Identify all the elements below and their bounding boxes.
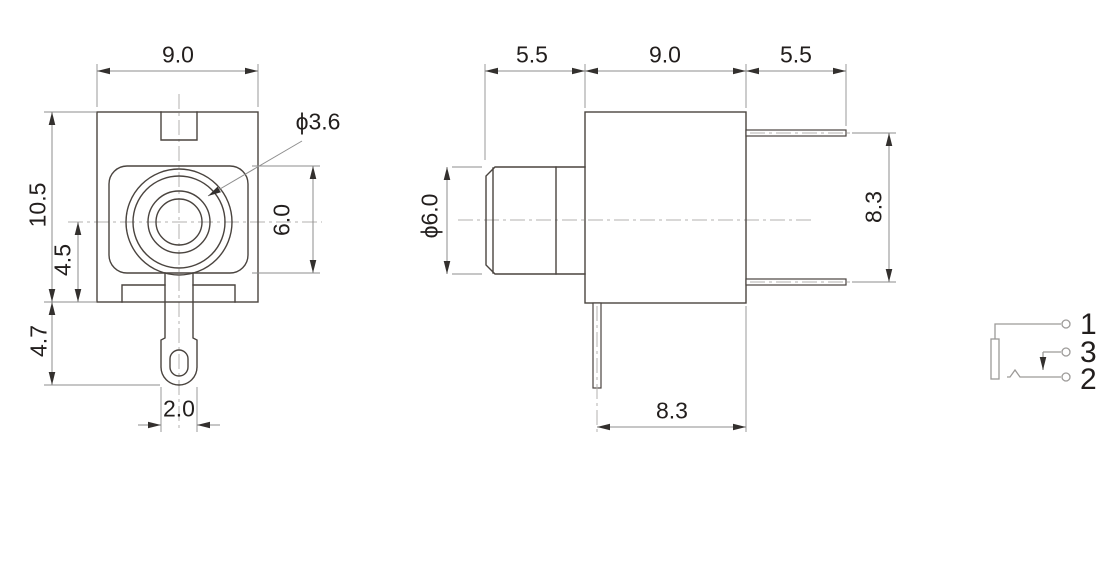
leader-front-hole-diameter: ϕ3.6	[208, 109, 340, 196]
label-side-bushing-diameter: ϕ6.0	[417, 194, 443, 239]
dim-side-pin-span: 8.3	[852, 133, 896, 282]
label-front-body-width: 9.0	[162, 42, 194, 68]
label-side-bushing-length: 5.5	[516, 42, 548, 68]
dim-front-body-width: 9.0	[97, 42, 258, 107]
label-front-lug-length: 4.7	[26, 325, 52, 357]
label-front-hole-diameter: ϕ3.6	[296, 109, 341, 135]
label-front-lug-width: 2.0	[163, 396, 195, 422]
side-view: 5.5 9.0 5.5 ϕ6.0 8.3 8.3	[417, 42, 896, 432]
schematic-wire-pin2-tip-contact	[1007, 370, 1061, 377]
technical-drawing-svg: 9.0 10.5 4.5 4.7 2.0 6.0	[0, 0, 1120, 578]
dim-side-pin-offset: 8.3	[597, 306, 746, 432]
label-front-body-height: 10.5	[25, 183, 51, 228]
schematic: 1 3 2	[991, 308, 1097, 396]
label-front-center-to-base: 4.5	[50, 244, 76, 276]
dim-front-lug-length: 4.7	[26, 302, 160, 385]
schematic-wire-pin1	[995, 324, 1061, 339]
label-schematic-pin-2: 2	[1080, 363, 1097, 396]
label-side-pin-offset: 8.3	[656, 398, 688, 424]
label-side-body-length: 9.0	[649, 42, 681, 68]
label-side-pin-span: 8.3	[861, 191, 887, 223]
label-front-bushing-height: 6.0	[269, 204, 295, 236]
dim-front-center-to-base: 4.5	[50, 222, 78, 302]
schematic-terminal-3	[1062, 348, 1070, 356]
schematic-terminal-1	[1062, 320, 1070, 328]
schematic-terminal-2	[1062, 373, 1070, 381]
front-view: 9.0 10.5 4.5 4.7 2.0 6.0	[25, 42, 341, 432]
drawing-canvas: 9.0 10.5 4.5 4.7 2.0 6.0	[0, 0, 1120, 578]
side-body-outline	[585, 112, 746, 303]
dim-side-top-chain: 5.5 9.0 5.5	[485, 42, 846, 160]
schematic-sleeve-contact	[991, 339, 999, 379]
label-side-pin-length: 5.5	[780, 42, 812, 68]
dim-front-bushing-height: 6.0	[252, 166, 320, 273]
